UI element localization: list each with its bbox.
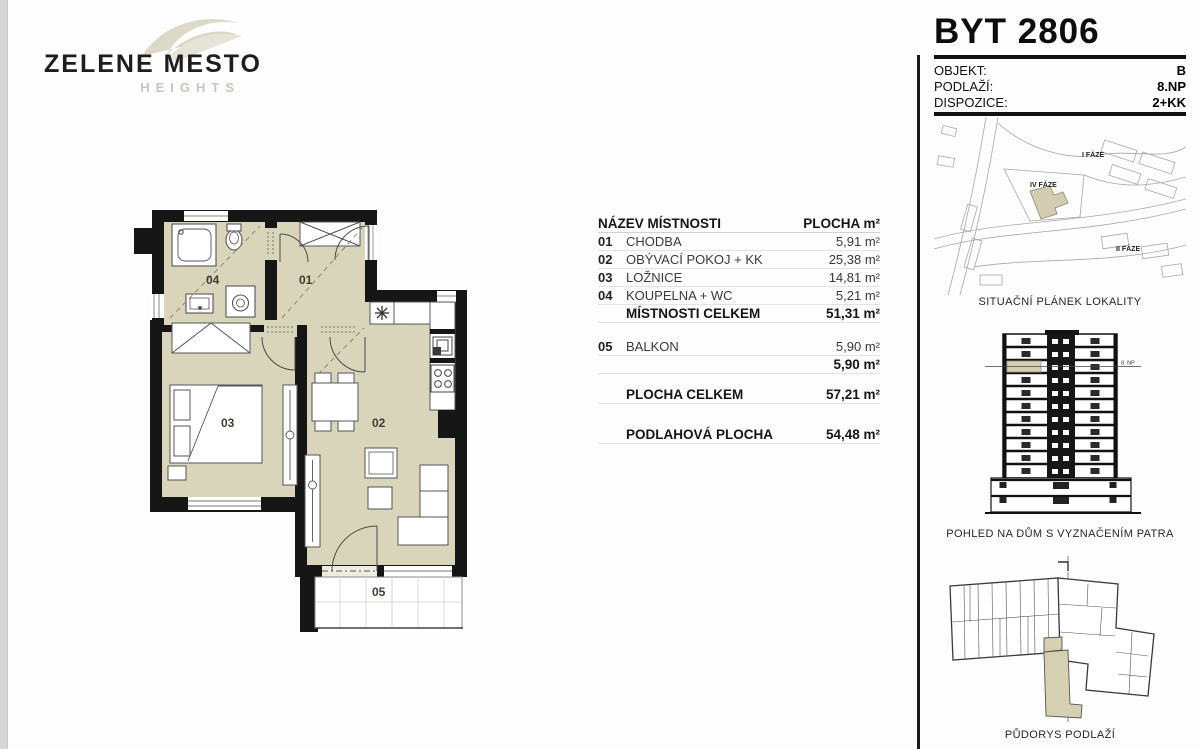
apartment-title: BYT 2806	[934, 12, 1188, 52]
elevation-caption: POHLED NA DŮM S VYZNAČENÍM PATRA	[930, 528, 1190, 540]
table-row: 04 KOUPELNA + WC 5,21 m²	[598, 287, 880, 305]
room-label-05: 05	[372, 585, 386, 599]
table-row: 01 CHODBA 5,91 m²	[598, 233, 880, 251]
header-name: NÁZEV MÍSTNOSTI	[598, 216, 803, 231]
logo-subtitle: HEIGHTS	[44, 80, 240, 95]
floor-overview-sketch	[940, 556, 1185, 722]
highlighted-floor-label: 8. NP	[1121, 361, 1135, 367]
table-header: NÁZEV MÍSTNOSTI PLOCHA m²	[598, 215, 880, 233]
room-label-04: 04	[206, 273, 220, 287]
phase-label-i: I FÁZE	[1082, 150, 1104, 159]
phase-label-iv: IV FÁZE	[1030, 180, 1057, 189]
phase-label-ii: II FÁZE	[1116, 244, 1140, 253]
room-label-01: 01	[299, 273, 313, 287]
area-table: NÁZEV MÍSTNOSTI PLOCHA m² 01 CHODBA 5,91…	[598, 215, 880, 444]
room-label-03: 03	[221, 416, 235, 430]
table-row-area-total: PLOCHA CELKEM 57,21 m²	[598, 386, 880, 404]
info-row-podlazi: PODLAŽÍ: 8.NP	[934, 78, 1186, 94]
panel-divider	[917, 55, 920, 749]
table-row-balcony-total: 5,90 m²	[598, 356, 880, 374]
site-plan-sketch: I FÁZE IV FÁZE II FÁZE	[934, 117, 1186, 295]
logo-title: ZELENE MESTO	[44, 50, 244, 79]
info-row-dispozice: DISPOZICE: 2+KK	[934, 94, 1186, 110]
apartment-floor-plan: 04 01 03 02 05	[122, 198, 472, 638]
table-row-floor-area: PODLAHOVÁ PLOCHA 54,48 m²	[598, 426, 880, 444]
page-edge-strip	[0, 0, 8, 749]
apartment-info: OBJEKT: B PODLAŽÍ: 8.NP DISPOZICE: 2+KK	[934, 62, 1186, 110]
header-area: PLOCHA m²	[803, 216, 880, 231]
table-row: 02 OBÝVACÍ POKOJ + KK 25,38 m²	[598, 251, 880, 269]
site-plan-caption: SITUAČNÍ PLÁNEK LOKALITY	[930, 296, 1190, 308]
room-label-02: 02	[372, 416, 386, 430]
info-rule	[934, 112, 1186, 116]
table-row-rooms-total: MÍSTNOSTI CELKEM 51,31 m²	[598, 305, 880, 323]
title-rule	[934, 55, 1186, 59]
table-row: 03 LOŽNICE 14,81 m²	[598, 269, 880, 287]
table-row: 05 BALKON 5,90 m²	[598, 338, 880, 356]
info-row-objekt: OBJEKT: B	[934, 62, 1186, 78]
overview-caption: PŮDORYS PODLAŽÍ	[930, 729, 1190, 741]
building-elevation-sketch: 8. NP	[985, 330, 1141, 522]
floorplan-sheet: ZELENE MESTO HEIGHTS	[0, 0, 1200, 749]
